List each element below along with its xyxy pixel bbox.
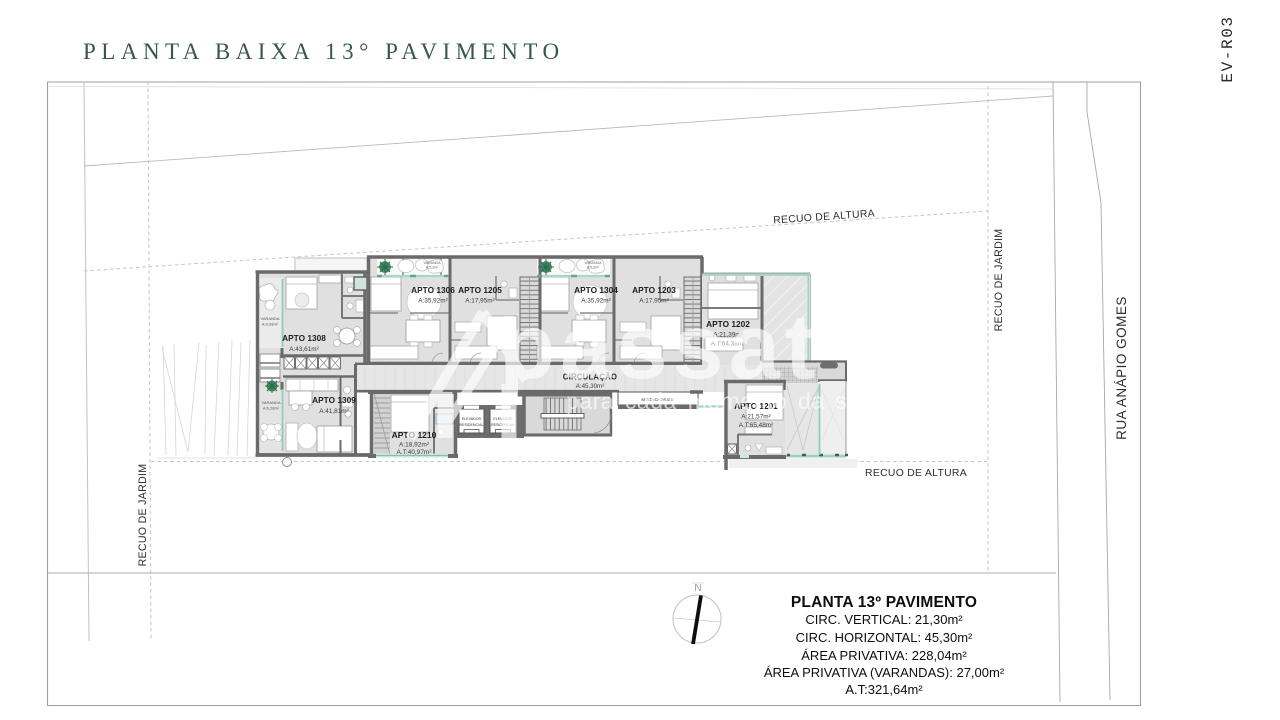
svg-text:PLANTA 13º PAVIMENTO: PLANTA 13º PAVIMENTO	[791, 594, 977, 611]
svg-text:A:41,81m²: A:41,81m²	[319, 408, 348, 415]
svg-text:para cada momento da sua vida: para cada momento da sua vida	[566, 388, 929, 414]
svg-text:PLANTA BAIXA 13° PAVIMENTO: PLANTA BAIXA 13° PAVIMENTO	[83, 39, 565, 64]
svg-text:A:35,92m²: A:35,92m²	[418, 298, 447, 305]
svg-text:CIRC. VERTICAL: 21,30m²: CIRC. VERTICAL: 21,30m²	[805, 612, 963, 627]
svg-text:RUA ANÁPIO GOMES: RUA ANÁPIO GOMES	[1114, 296, 1129, 440]
svg-text:VARANDA: VARANDA	[261, 400, 280, 405]
svg-text:APTO 1203: APTO 1203	[632, 285, 676, 295]
svg-text:VARANDA: VARANDA	[423, 261, 441, 265]
svg-text:VARANDA: VARANDA	[584, 261, 602, 265]
svg-text:A:5,3m²: A:5,3m²	[426, 266, 439, 270]
svg-text:APTO 1309: APTO 1309	[312, 395, 356, 405]
svg-text:A:18,92m²: A:18,92m²	[399, 442, 430, 449]
svg-text:passat: passat	[499, 296, 821, 398]
svg-text:A:43,61m²: A:43,61m²	[289, 346, 318, 353]
svg-text:APTO 1205: APTO 1205	[458, 285, 502, 295]
svg-text:APTO 1306: APTO 1306	[411, 285, 455, 295]
svg-text:A.T:65,48m²: A.T:65,48m²	[739, 422, 773, 429]
svg-text:APTO 1304: APTO 1304	[574, 285, 618, 295]
svg-text:APTO 1308: APTO 1308	[282, 333, 326, 343]
svg-text:RECUO DE ALTURA: RECUO DE ALTURA	[865, 468, 967, 479]
svg-text:A.T:321,64m²: A.T:321,64m²	[845, 682, 923, 697]
svg-text:RECUO DE JARDIM: RECUO DE JARDIM	[137, 464, 149, 567]
svg-text:ELEVADOR: ELEVADOR	[462, 417, 482, 421]
svg-text:VARANDA: VARANDA	[260, 316, 279, 321]
svg-text:RECUO DE JARDIM: RECUO DE JARDIM	[993, 229, 1005, 332]
svg-text:A:17,95m²: A:17,95m²	[465, 298, 494, 305]
svg-text:N: N	[694, 583, 701, 594]
svg-text:RESIDENCIAL: RESIDENCIAL	[460, 423, 484, 427]
svg-text:A:5,3m²: A:5,3m²	[587, 266, 600, 270]
svg-text:A:9,28m²: A:9,28m²	[262, 322, 279, 327]
svg-text:EV-R03: EV-R03	[1219, 15, 1237, 82]
svg-text:ÁREA PRIVATIVA: 228,04m²: ÁREA PRIVATIVA: 228,04m²	[801, 648, 967, 663]
svg-text:A:21,57m²: A:21,57m²	[741, 414, 770, 421]
svg-text:A:6,28m²: A:6,28m²	[263, 406, 280, 411]
svg-text:A.T:40,97m²: A.T:40,97m²	[396, 449, 432, 456]
svg-text:ÁREA PRIVATIVA (VARANDAS): 27,: ÁREA PRIVATIVA (VARANDAS): 27,00m²	[764, 665, 1005, 680]
svg-text:CIRC. HORIZONTAL: 45,30m²: CIRC. HORIZONTAL: 45,30m²	[796, 630, 973, 645]
